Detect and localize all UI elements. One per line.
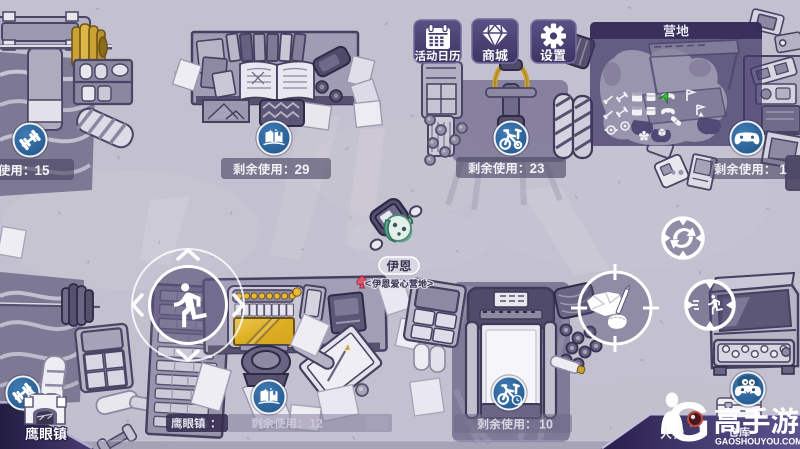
svg-text:1: 1 (779, 162, 787, 177)
svg-text:15: 15 (34, 163, 50, 178)
svg-text:29: 29 (294, 162, 309, 177)
svg-text:>: > (427, 278, 433, 290)
svg-text:<: < (365, 278, 371, 290)
svg-text:GAOSHOUYOU.COM: GAOSHOUYOU.COM (715, 437, 800, 447)
svg-text:10: 10 (539, 418, 553, 432)
svg-text:12: 12 (309, 417, 323, 431)
svg-text:23: 23 (529, 161, 545, 176)
